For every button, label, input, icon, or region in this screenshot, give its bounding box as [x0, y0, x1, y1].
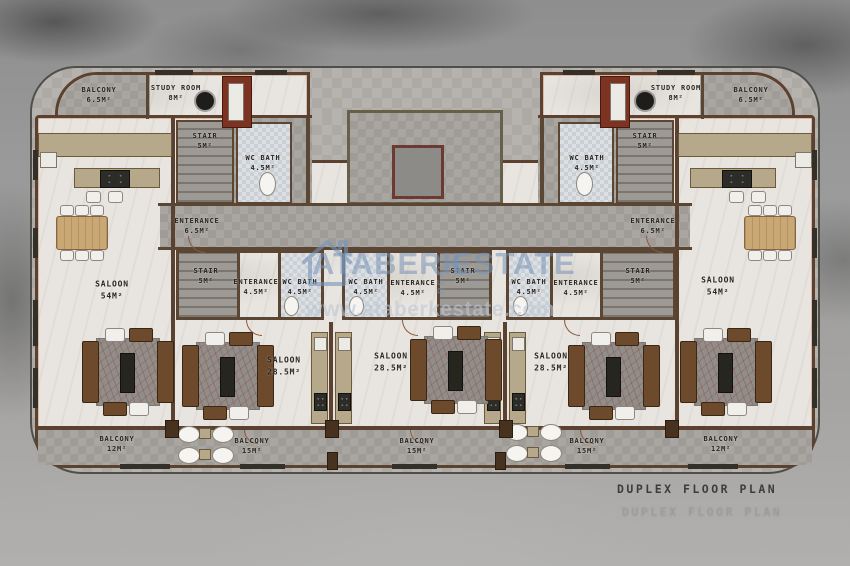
kitchen-counter-right — [678, 133, 812, 157]
dining-chair — [763, 250, 777, 261]
armchair — [727, 402, 747, 416]
stool — [86, 191, 101, 203]
window — [688, 464, 738, 469]
armchair — [615, 406, 635, 420]
balcony-chair — [527, 426, 539, 437]
window — [812, 368, 817, 408]
dining-chair — [748, 250, 762, 261]
sofa — [680, 341, 697, 403]
room-label-entrance-right-corner: ENTERANCE 6.5M² — [630, 216, 675, 236]
room-label-balcony-bottom-left: BALCONY 12M² — [99, 434, 134, 454]
window — [33, 300, 38, 346]
coffee-table — [448, 351, 463, 391]
column — [499, 420, 513, 438]
toilet — [259, 172, 276, 196]
column — [495, 452, 506, 470]
plan-title: DUPLEX FLOOR PLAN — [617, 482, 777, 496]
window — [812, 228, 817, 258]
loveseat — [129, 328, 153, 342]
room-label-study-left: STUDY ROOM 8M² — [151, 83, 201, 103]
balcony-table — [178, 426, 200, 443]
balcony-table-set — [506, 424, 560, 460]
column — [325, 420, 339, 438]
stove — [100, 170, 130, 188]
balcony-table — [540, 445, 562, 462]
living-set-left-corner — [82, 328, 172, 414]
window — [120, 464, 170, 469]
living-set-middle-left — [182, 332, 272, 418]
window — [33, 368, 38, 408]
armchair — [229, 406, 249, 420]
armchair — [105, 328, 125, 342]
armchair — [433, 326, 453, 340]
sofa — [182, 345, 199, 407]
armchair — [457, 400, 477, 414]
stove — [314, 393, 327, 411]
elevator-shaft — [392, 145, 444, 199]
study-desk — [610, 83, 626, 121]
room-label-balcony-mid-right: BALCONY 15M² — [569, 436, 604, 456]
window — [392, 464, 437, 469]
balcony-chair — [199, 449, 211, 460]
unit-divider-wall — [675, 115, 679, 428]
watermark-real: REAL — [436, 252, 446, 294]
dining-table-right — [744, 216, 796, 250]
balcony-table — [212, 447, 234, 464]
duplex-floor-plan-image: BALCONY 6.5M² STUDY ROOM 8M² STAIR 5M² W… — [0, 0, 850, 566]
armchair — [591, 332, 611, 346]
corridor — [160, 206, 690, 250]
kitchen-strip — [311, 332, 328, 424]
watermark-estate: ESTATE — [452, 246, 576, 282]
loveseat — [589, 406, 613, 420]
stool — [751, 191, 766, 203]
room-label-stair-right-corner: STAIR 5M² — [632, 131, 657, 151]
coffee-table — [606, 357, 621, 397]
stool — [108, 191, 123, 203]
armchair — [205, 332, 225, 346]
room-label-stair-mid-right: STAIR 5M² — [625, 266, 650, 286]
room-label-entrance-left-corner: ENTERANCE 6.5M² — [174, 216, 219, 236]
dining-chair — [778, 205, 792, 216]
sofa — [410, 339, 427, 401]
wing-inner-wall — [540, 118, 544, 206]
toilet — [576, 172, 593, 196]
sink — [512, 337, 525, 351]
living-set-middle-right — [568, 332, 658, 418]
balcony-front-wall — [38, 426, 812, 430]
corridor-wall — [158, 203, 692, 206]
dining-chair — [763, 205, 777, 216]
column — [327, 452, 338, 470]
sofa — [157, 341, 174, 403]
coffee-table — [220, 357, 235, 397]
room-label-entrance-mid-left: ENTERANCE 4.5M² — [233, 277, 278, 297]
room-label-wc-right-corner: WC BATH 4.5M² — [569, 153, 604, 173]
sofa — [485, 339, 502, 401]
sink — [40, 152, 57, 168]
kitchen-strip — [335, 332, 352, 424]
sink — [338, 337, 351, 351]
living-set-right-corner — [680, 328, 770, 414]
sofa — [643, 345, 660, 407]
balcony-table — [212, 426, 234, 443]
balcony-table — [506, 445, 528, 462]
dining-chair — [748, 205, 762, 216]
sink — [795, 152, 812, 168]
unit-divider-wall — [503, 322, 507, 428]
balcony-chair — [199, 428, 211, 439]
dining-chair — [60, 205, 74, 216]
room-label-saloon-mid-left: SALOON 28.5M² — [267, 354, 301, 377]
sofa — [755, 341, 772, 403]
window — [240, 464, 285, 469]
stove — [722, 170, 752, 188]
coffee-table — [718, 353, 733, 393]
window — [657, 70, 695, 75]
column — [665, 420, 679, 438]
window — [155, 70, 193, 75]
dining-chair — [90, 205, 104, 216]
dining-chair — [75, 205, 89, 216]
sofa — [568, 345, 585, 407]
room-label-saloon-mid-right: SALOON 28.5M² — [534, 350, 568, 373]
window — [565, 464, 610, 469]
loveseat — [701, 402, 725, 416]
window — [33, 150, 38, 180]
room-label-saloon-left-corner: SALOON 54M² — [95, 278, 129, 301]
balcony-table-set — [178, 426, 232, 462]
loveseat — [727, 328, 751, 342]
study-wardrobe-right — [600, 76, 630, 128]
room-label-balcony-mid-left: BALCONY 15M² — [234, 436, 269, 456]
window — [563, 70, 595, 75]
balcony-chair — [527, 447, 539, 458]
loveseat — [229, 332, 253, 346]
room-label-stair-left-corner: STAIR 5M² — [192, 131, 217, 151]
dining-chair — [90, 250, 104, 261]
unit-divider-wall — [329, 322, 333, 428]
wing-inner-wall — [306, 118, 310, 206]
balcony-table — [540, 424, 562, 441]
loveseat — [431, 400, 455, 414]
dining-chair — [778, 250, 792, 261]
watermark-url: www.ataberkestate.com — [306, 298, 555, 322]
window — [255, 70, 287, 75]
kitchen-strip — [509, 332, 526, 424]
stool — [729, 191, 744, 203]
loveseat — [203, 406, 227, 420]
window — [33, 228, 38, 258]
study-wardrobe-left — [222, 76, 252, 128]
dining-table-left — [56, 216, 108, 250]
balcony-wall — [701, 74, 704, 119]
dining-chair — [75, 250, 89, 261]
loveseat — [615, 332, 639, 346]
balcony-table — [178, 447, 200, 464]
kitchen-counter-left — [38, 133, 172, 157]
balcony-wall — [146, 74, 149, 119]
window — [812, 150, 817, 180]
loveseat — [103, 402, 127, 416]
column — [165, 420, 179, 438]
room-label-balcony-top-right: BALCONY 6.5M² — [733, 85, 768, 105]
toilet — [284, 296, 299, 316]
loveseat — [457, 326, 481, 340]
plan-title-ghost: DUPLEX FLOOR PLAN — [622, 505, 782, 519]
room-label-study-right: STUDY ROOM 8M² — [651, 83, 701, 103]
study-desk — [228, 83, 244, 121]
sink — [314, 337, 327, 351]
armchair — [129, 402, 149, 416]
room-label-balcony-mid-center: BALCONY 15M² — [399, 436, 434, 456]
window — [812, 300, 817, 346]
stove — [512, 393, 525, 411]
sofa — [82, 341, 99, 403]
room-label-balcony-top-left: BALCONY 6.5M² — [81, 85, 116, 105]
stove — [338, 393, 351, 411]
room-label-balcony-bottom-right: BALCONY 12M² — [703, 434, 738, 454]
dining-chair — [60, 250, 74, 261]
room-label-stair-mid-left: STAIR 5M² — [193, 266, 218, 286]
coffee-table — [120, 353, 135, 393]
room-label-saloon-right-corner: SALOON 54M² — [701, 274, 735, 297]
armchair — [703, 328, 723, 342]
living-set-middle-center — [410, 326, 500, 412]
room-label-wc-left-corner: WC BATH 4.5M² — [245, 153, 280, 173]
room-label-saloon-mid-center: SALOON 28.5M² — [374, 350, 408, 373]
